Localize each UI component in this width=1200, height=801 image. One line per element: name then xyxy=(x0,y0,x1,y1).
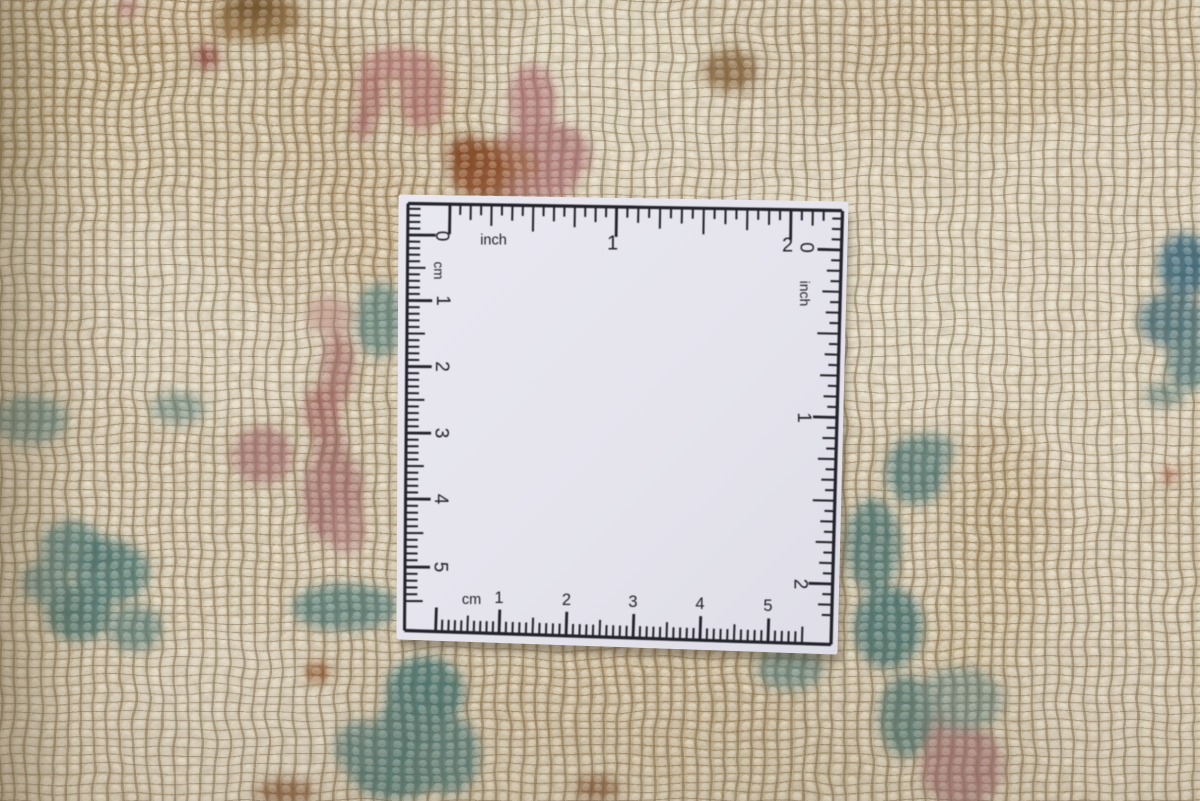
svg-text:5: 5 xyxy=(430,562,451,573)
svg-text:inch: inch xyxy=(480,233,507,249)
svg-text:4: 4 xyxy=(430,494,451,505)
svg-text:3: 3 xyxy=(431,428,452,439)
svg-text:cm: cm xyxy=(462,592,481,608)
svg-text:1: 1 xyxy=(793,412,814,423)
svg-text:0: 0 xyxy=(796,242,817,253)
svg-text:3: 3 xyxy=(628,593,637,611)
svg-text:4: 4 xyxy=(695,595,704,613)
svg-text:1: 1 xyxy=(494,589,503,607)
svg-text:2: 2 xyxy=(562,591,571,609)
svg-text:2: 2 xyxy=(790,579,811,590)
svg-text:2: 2 xyxy=(782,235,793,257)
svg-text:2: 2 xyxy=(431,361,452,372)
svg-text:1: 1 xyxy=(432,295,453,306)
svg-text:inch: inch xyxy=(797,281,813,307)
svg-text:5: 5 xyxy=(763,597,772,615)
svg-text:1: 1 xyxy=(607,233,618,255)
svg-text:cm: cm xyxy=(431,262,446,280)
svg-text:0: 0 xyxy=(431,231,452,242)
